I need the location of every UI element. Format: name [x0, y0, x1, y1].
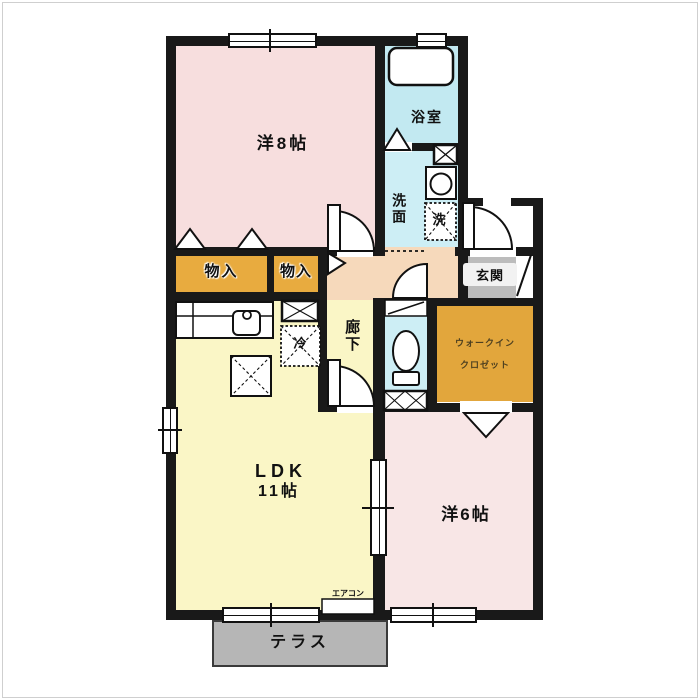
- entrance-door-diagonal: [517, 255, 531, 296]
- door-arc-front: [463, 203, 512, 249]
- label-bathroom: 浴室: [387, 109, 467, 125]
- label-western6: 洋6帖: [406, 505, 526, 525]
- toilet-xbox-icon: [384, 391, 427, 410]
- bathtub-icon: [389, 48, 453, 85]
- label-entrance: 玄関: [463, 263, 517, 286]
- bath-folding-door-icon: [384, 129, 410, 150]
- label-fridge: 冷: [289, 337, 311, 352]
- ldk-xbox-icon: [231, 356, 271, 396]
- cupboard-xbox-icon: [282, 301, 318, 321]
- faucet-icon: [243, 311, 251, 319]
- label-ldk-line1: LDK: [221, 461, 341, 482]
- door-arc-ldk: [328, 360, 374, 406]
- label-storage2: 物入: [274, 263, 318, 280]
- label-aircon: エアコン: [317, 589, 379, 598]
- storage2-door-icon: [328, 253, 345, 274]
- washbasin-icon: [426, 167, 456, 199]
- label-western8: 洋8帖: [223, 134, 343, 154]
- label-hallway: 廊下: [343, 310, 360, 362]
- toilet-icon: [393, 331, 419, 385]
- label-washroom: 洗面: [391, 178, 407, 240]
- storage1-door-icon: [237, 229, 267, 249]
- label-terrace: テラス: [250, 634, 350, 652]
- kitchen-counter-icon: [176, 302, 273, 338]
- storage1-door-icon: [175, 229, 205, 249]
- label-storage1: 物入: [176, 263, 267, 280]
- label-ldk-line2: 11帖: [219, 483, 339, 501]
- label-laundry: 洗: [427, 213, 451, 228]
- floorplan-canvas: 洋8帖 浴室 洗面 洗 物入 物入 廊下 玄関 ウォークイン クロゼット 冷 L…: [0, 0, 700, 700]
- door-arc-toilet: [385, 264, 427, 316]
- aircon-box-icon: [322, 599, 374, 614]
- washroom-xbox-icon: [434, 145, 457, 164]
- door-arc-western8: [328, 205, 374, 251]
- closet-door-icon: [464, 413, 508, 437]
- label-walkin-line2: クロゼット: [437, 360, 533, 370]
- label-walkin-line1: ウォークイン: [437, 338, 533, 348]
